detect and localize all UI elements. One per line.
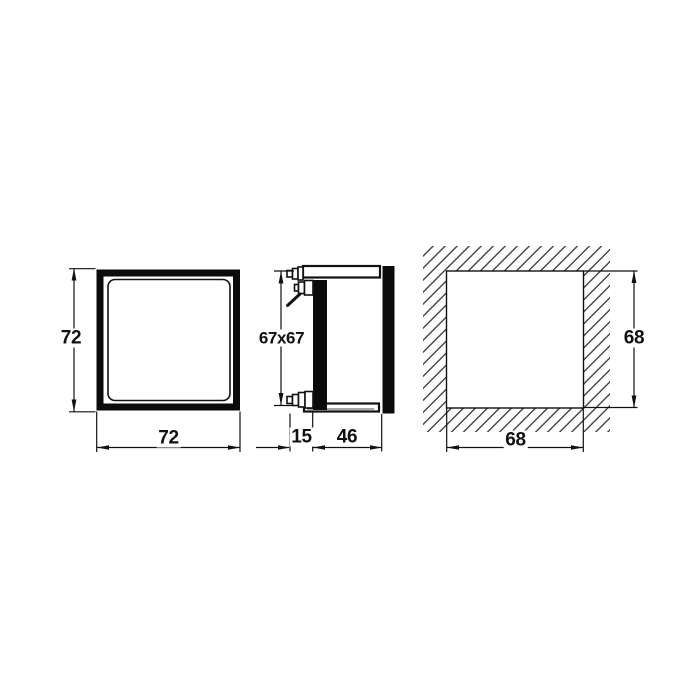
cutout-square bbox=[447, 271, 584, 408]
side-clamp-lever bbox=[288, 294, 301, 306]
drawing-linework bbox=[0, 0, 700, 700]
side-front-panel-bar bbox=[313, 280, 327, 410]
side-body-dim-label: 67x67 bbox=[257, 330, 306, 347]
front-view bbox=[69, 268, 240, 452]
cutout-width-dim-label: 68 bbox=[503, 430, 528, 449]
side-view bbox=[256, 266, 395, 452]
side-top-screw bbox=[287, 267, 303, 280]
side-rear-bar bbox=[383, 266, 395, 414]
front-height-dim-label: 72 bbox=[59, 329, 84, 348]
front-bezel-frame bbox=[100, 273, 237, 407]
technical-drawing: 72 72 67x67 15 46 68 68 bbox=[0, 0, 700, 700]
front-width-dim-label: 72 bbox=[156, 429, 181, 448]
side-rear-depth-dim-label: 46 bbox=[335, 428, 360, 447]
side-clamp-screw bbox=[295, 281, 314, 296]
side-front-depth-dim-label: 15 bbox=[289, 428, 314, 447]
cutout-view bbox=[423, 246, 638, 452]
cutout-height-dim-label: 68 bbox=[622, 328, 647, 347]
side-case-top-wall bbox=[303, 266, 380, 278]
